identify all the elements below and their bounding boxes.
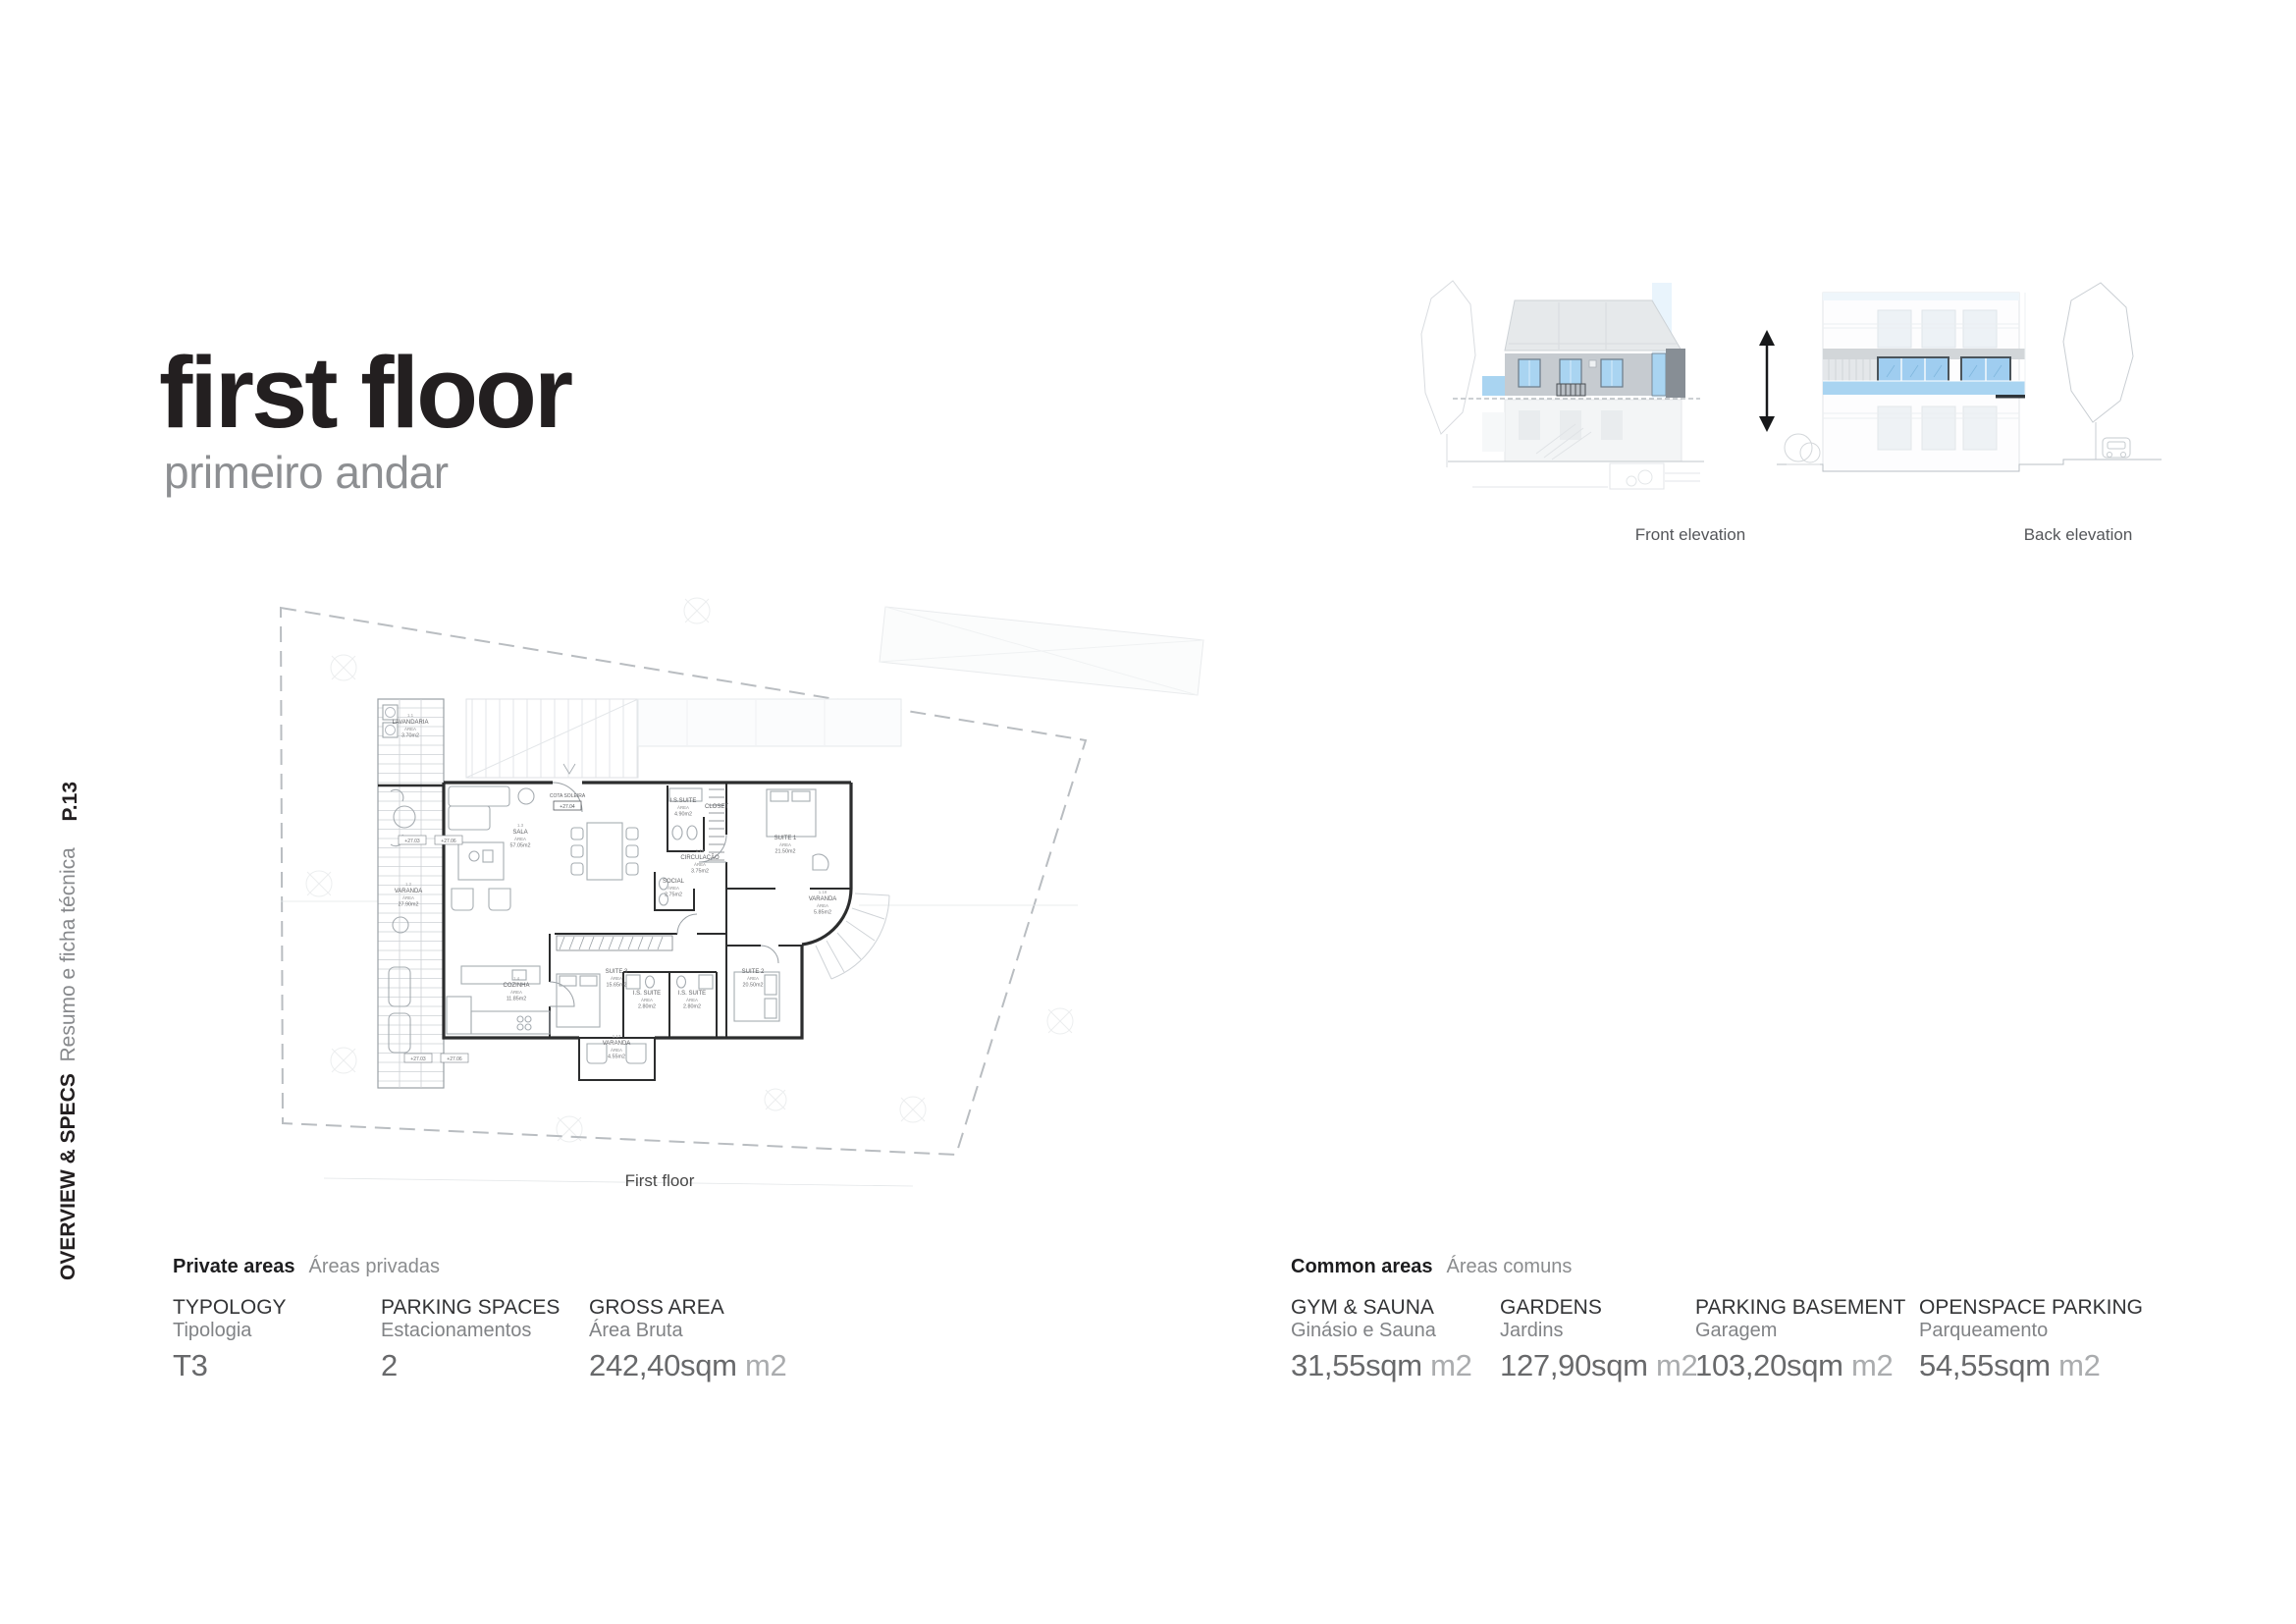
room-label: ÁREA — [694, 862, 706, 867]
room-label: ÁREA — [404, 727, 416, 731]
room-label: I.S. SUITE — [633, 991, 661, 997]
tree-outline-icon — [2063, 283, 2133, 460]
tree-outline-icon — [1421, 281, 1475, 467]
room-label: ÁREA — [817, 903, 828, 908]
spec-parking-basement: PARKING BASEMENT Garagem 103,20sqm m2 — [1695, 1296, 1905, 1380]
room-label: VARANDA — [603, 1041, 631, 1047]
room-label: +27.03 — [410, 1056, 426, 1062]
room-label: 5.85m2 — [814, 910, 831, 916]
sidebar-section-subtitle: Resumo e ficha técnica — [57, 847, 80, 1061]
bush-icon — [1785, 434, 1820, 464]
front-ground-detail — [1472, 463, 1700, 489]
front-elevation-label: Front elevation — [1602, 525, 1779, 545]
room-label: SUITE 3 — [606, 969, 628, 975]
room-label: 3.75m2 — [691, 869, 709, 875]
room-label: +27.03 — [404, 839, 420, 844]
room-label: 1.4 — [513, 976, 520, 981]
neighbour-structure — [880, 607, 1203, 695]
room-label: SALA — [512, 830, 527, 836]
room-label: 2.80m2 — [638, 1004, 656, 1010]
room-label: 1.3 — [517, 823, 524, 828]
brochure-page: first floor primeiro andar P.13 OVERVIEW… — [0, 0, 2296, 1624]
front-elevation-figure — [1414, 265, 1737, 506]
private-areas-header: Private areasÁreas privadas — [173, 1257, 440, 1276]
room-label: ÁREA — [667, 886, 679, 891]
room-label: 20.50m2 — [743, 983, 764, 989]
room-label: +27.04 — [560, 804, 575, 810]
front-top-floor — [1505, 300, 1682, 351]
room-label: ÁREA — [779, 842, 791, 847]
room-label: ÁREA — [510, 990, 522, 995]
room-label: ÁREA — [402, 895, 414, 900]
spec-gross-area: GROSS AREA Área Bruta 242,40sqm m2 — [589, 1296, 786, 1380]
room-label: SOCIAL — [663, 879, 685, 885]
spec-gym-sauna: GYM & SAUNA Ginásio e Sauna 31,55sqm m2 — [1291, 1296, 1472, 1380]
spec-openspace-parking: OPENSPACE PARKING Parqueamento 54,55sqm … — [1919, 1296, 2143, 1380]
room-label: 4.90m2 — [674, 812, 692, 818]
floor-plan-figure: 1.1LAVANDARIAÁREA3.70m21.2VARANDAÁREA27.… — [226, 550, 1217, 1218]
room-label: I.S. SUITE — [678, 991, 706, 997]
room-label: 3.70m2 — [401, 733, 419, 739]
sidebar-page-number: P.13 — [57, 782, 90, 827]
back-first-floor — [1823, 349, 2025, 399]
room-label: 2.75m2 — [665, 893, 682, 898]
room-label: +27.06 — [441, 839, 456, 844]
room-label: 1.1 — [407, 713, 414, 718]
room-label: CIRCULAÇÃO — [680, 854, 720, 861]
room-label: 1.2 — [405, 882, 412, 887]
room-label: 21.50m2 — [775, 849, 796, 855]
room-label: COZINHA — [504, 983, 530, 989]
room-label: 1.16 — [696, 848, 705, 853]
room-label: ÁREA — [677, 805, 689, 810]
room-label: 27.90m2 — [399, 902, 419, 908]
room-label: ÁREA — [747, 976, 759, 981]
room-label: SUITE 2 — [742, 969, 765, 975]
room-label: 11.85m2 — [507, 997, 527, 1002]
car-icon — [2103, 438, 2130, 458]
room-label: ÁREA — [514, 837, 526, 841]
back-elevation-figure — [1777, 263, 2162, 507]
back-elevation-label: Back elevation — [1990, 525, 2166, 545]
room-label: 2.80m2 — [683, 1004, 701, 1010]
common-areas-header: Common areasÁreas comuns — [1291, 1257, 1572, 1276]
room-label: CLOSET — [705, 804, 728, 810]
front-lower-floor — [1482, 400, 1682, 461]
room-label: 1.18 — [819, 890, 828, 894]
page-subtitle: primeiro andar — [164, 450, 449, 495]
room-label: COTA SOLEIRA — [550, 793, 586, 799]
room-label: I.S.SUITE — [670, 798, 697, 804]
room-label: 4.55m2 — [608, 1055, 625, 1060]
room-label: 15.65m2 — [607, 983, 627, 989]
sidebar-section: OVERVIEW & SPECS Resumo e ficha técnica — [55, 884, 90, 1280]
sidebar-section-title: OVERVIEW & SPECS — [57, 1073, 80, 1280]
room-label: ÁREA — [611, 976, 622, 981]
room-label: ÁREA — [641, 998, 653, 1002]
room-label: 57.05m2 — [510, 843, 531, 849]
room-label: ÁREA — [611, 1048, 622, 1053]
page-title: first floor — [159, 342, 570, 443]
upper-terrace — [466, 699, 901, 778]
room-label: LAVANDARIA — [392, 720, 428, 726]
room-label: SUITE 1 — [774, 836, 797, 841]
spec-parking-spaces: PARKING SPACES Estacionamentos 2 — [381, 1296, 560, 1380]
spec-gardens: GARDENS Jardins 127,90sqm m2 — [1500, 1296, 1697, 1380]
spec-typology: TYPOLOGY Tipologia T3 — [173, 1296, 287, 1380]
room-label: 1.17 — [613, 1034, 621, 1039]
room-label: VARANDA — [395, 889, 423, 894]
room-label: +27.06 — [447, 1056, 462, 1062]
room-label: VARANDA — [809, 896, 837, 902]
front-first-floor — [1482, 349, 1685, 398]
plan-caption: First floor — [581, 1171, 738, 1191]
room-label: ÁREA — [686, 998, 698, 1002]
